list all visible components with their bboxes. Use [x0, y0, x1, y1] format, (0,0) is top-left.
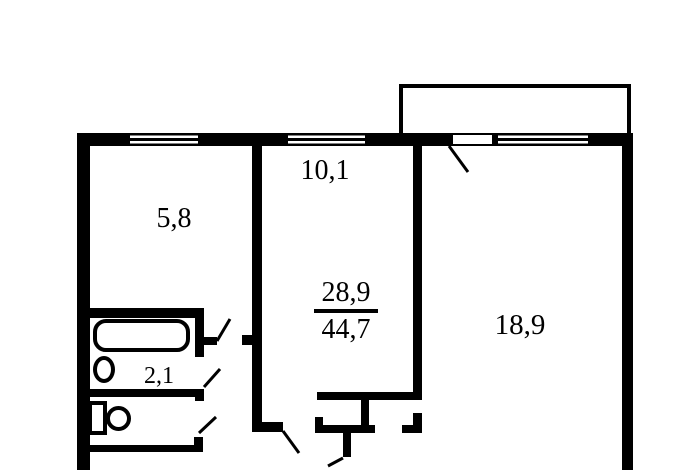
hall-area-numerator: 28,9: [312, 277, 380, 308]
door-swing-toilet: [199, 417, 216, 433]
door-swing-entrance: [328, 458, 343, 466]
room-area-label-top-middle: 10,1: [287, 156, 363, 187]
door-swing-hall: [283, 431, 299, 453]
hall-area-fraction: 28,9 44,7: [312, 277, 380, 345]
room-area-label-top-left: 5,8: [139, 204, 209, 235]
door-swing-balcony: [449, 146, 468, 172]
room-area-label-bathroom: 2,1: [132, 363, 186, 389]
door-swing-wc: [204, 369, 220, 387]
door-swings-layer: [0, 0, 700, 470]
fraction-bar: [314, 309, 378, 313]
room-area-label-right: 18,9: [482, 310, 558, 342]
floor-plan: 5,8 10,1 18,9 2,1 28,9 44,7: [0, 0, 700, 470]
door-swing-bathroom: [217, 319, 230, 341]
hall-area-denominator: 44,7: [312, 314, 380, 345]
